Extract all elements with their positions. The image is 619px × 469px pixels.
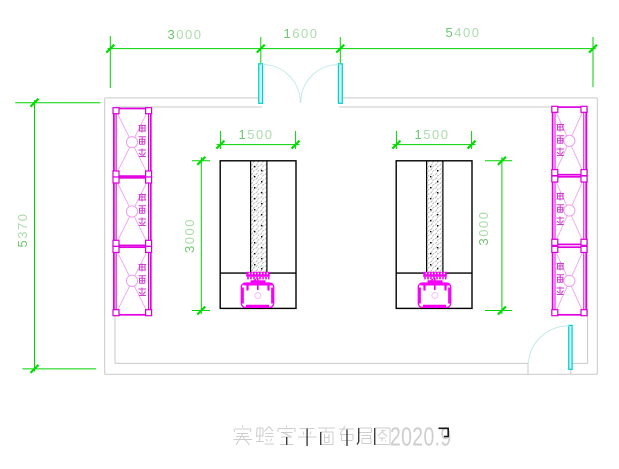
- svg-text:2020.9: 2020.9: [390, 423, 452, 451]
- svg-text:3000: 3000: [476, 211, 491, 246]
- svg-text:3000: 3000: [168, 27, 203, 42]
- svg-text:5400: 5400: [446, 25, 481, 40]
- svg-text:1600: 1600: [284, 26, 319, 41]
- svg-text:5370: 5370: [15, 213, 30, 248]
- svg-text:1500: 1500: [239, 127, 274, 142]
- svg-text:1500: 1500: [415, 127, 450, 142]
- svg-text:3000: 3000: [182, 218, 197, 253]
